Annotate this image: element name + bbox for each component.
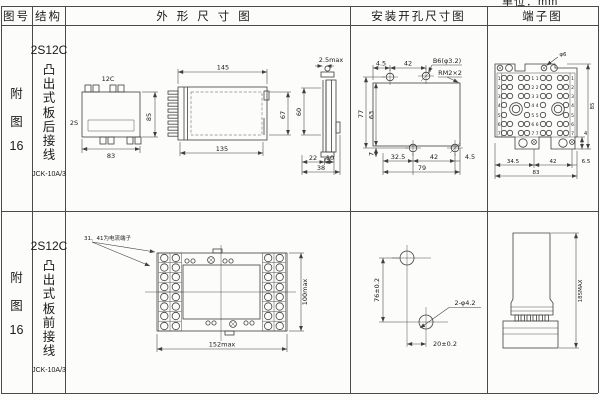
relay-edge-view: 2.5max 60 22 10 38	[295, 56, 343, 175]
screw-label: φ6	[559, 52, 567, 58]
svg-text:5 5: 5 5	[531, 113, 538, 119]
model-label: 2S12C	[31, 239, 68, 253]
dim-label: 20±0.2	[433, 340, 457, 348]
dim-label: 7	[368, 152, 376, 156]
svg-text:7 7: 7 7	[531, 131, 538, 137]
dim-label: 83	[533, 170, 540, 176]
header-mounting: 安装开孔尺寸图	[350, 6, 487, 25]
dim-label: 63	[368, 111, 376, 119]
svg-text:1: 1	[571, 76, 574, 82]
label-12c: 12C	[102, 75, 115, 83]
thread-spec-label: RM2×2	[438, 69, 462, 77]
svg-text:1 1: 1 1	[531, 76, 538, 82]
relay-profile-view: 185MAX	[503, 233, 584, 348]
svg-text:4: 4	[498, 103, 501, 109]
header-fig-no: 图号	[1, 6, 32, 25]
dim-label: 4.5	[376, 60, 386, 68]
svg-text:4 4: 4 4	[531, 103, 538, 109]
relay-side-view: 145 135 67	[168, 64, 291, 157]
svg-text:3 3: 3 3	[531, 94, 538, 100]
fig-char: 16	[10, 323, 24, 337]
wiring-type-label: 凸出式板前接线	[42, 259, 57, 358]
structure-row1: 2S12C 凸出式板后接线 JCK-10A/3	[33, 25, 65, 211]
dim-label: 6.5	[582, 159, 591, 165]
front-wiring-view: 31、41为电流端子 100max 152max	[84, 234, 309, 352]
svg-text:4: 4	[571, 103, 574, 109]
relay-type-label: JCK-10A/3	[32, 171, 66, 178]
model-label: 2S12C	[31, 43, 68, 57]
figure-number-row1: 附 图 16	[1, 25, 32, 211]
terminal-numbers: 11 11 22 22 33 33 44 44 55 55 66 66 77 7…	[498, 76, 574, 137]
mounting-holes-front: 2-φ4.2 76±0.2 20±0.2	[373, 245, 481, 348]
datasheet-page: 单位：mm 图号 结构 外形尺寸图 安装开孔尺寸图 端子图 附 图 16 附 图…	[0, 0, 600, 400]
dim-label: 42	[404, 60, 412, 68]
svg-text:6 6: 6 6	[531, 122, 538, 128]
mounting-drawing-row2: 2-φ4.2 76±0.2 20±0.2	[350, 211, 487, 395]
svg-text:7: 7	[498, 131, 501, 137]
header-structure: 结构	[32, 6, 65, 25]
svg-text:1: 1	[498, 76, 501, 82]
svg-text:5: 5	[498, 113, 501, 119]
svg-text:3: 3	[498, 94, 501, 100]
structure-row2: 2S12C 凸出式板前接线 JCK-10A/3	[33, 211, 65, 393]
relay-type-label: JCK-10A/3	[32, 367, 66, 374]
terminal-drawing-row2: 185MAX	[487, 211, 598, 395]
dim-label: 38	[317, 164, 325, 172]
svg-text:7: 7	[571, 131, 574, 137]
dim-label: 32.5	[391, 153, 405, 161]
table-border	[598, 6, 599, 393]
dim-label: 152max	[209, 341, 236, 349]
svg-text:2 2: 2 2	[531, 85, 538, 91]
dim-label: 85	[145, 113, 153, 121]
terminal-drawing-row1: φ6 11 11 22 22 33 33 44 44 55	[487, 25, 598, 211]
svg-text:6: 6	[571, 122, 574, 128]
outline-drawing-row2: 31、41为电流端子 100max 152max	[65, 211, 350, 395]
panel-cutout-drawing: 4.5 42 B6(φ3.2) RM2×2 77 63 7 32.5 42 4.…	[357, 57, 475, 175]
dim-label: 76±0.2	[373, 278, 381, 302]
dim-label: 185MAX	[578, 279, 584, 302]
dim-label: 10	[326, 154, 334, 162]
svg-text:2: 2	[498, 85, 501, 91]
label-2s: 2S	[70, 119, 78, 127]
fig-char: 图	[10, 295, 23, 314]
screw-spec-label: B6(φ3.2)	[433, 57, 461, 65]
dim-label: 60	[295, 108, 303, 116]
relay-top-view: 12C 2S 85 83	[70, 75, 158, 160]
terminal-layout-drawing: φ6 11 11 22 22 33 33 44 44 55	[495, 52, 596, 179]
dim-label: 22	[309, 154, 317, 162]
current-terminal-note: 31、41为电流端子	[84, 234, 131, 242]
svg-text:5: 5	[571, 113, 574, 119]
dim-label: 79	[418, 164, 426, 172]
dim-label: 4	[584, 131, 587, 137]
svg-text:2: 2	[571, 85, 574, 91]
fig-char: 附	[10, 83, 23, 102]
dim-label: 67	[279, 111, 287, 119]
header-terminal: 端子图	[487, 6, 598, 25]
svg-text:6: 6	[498, 122, 501, 128]
dim-label: 34.5	[507, 159, 520, 165]
dim-label: 100max	[301, 279, 309, 306]
dim-label: 83	[107, 152, 115, 160]
wiring-type-label: 凸出式板后接线	[42, 63, 57, 162]
fig-char: 图	[10, 111, 23, 130]
figure-number-row2: 附 图 16	[1, 211, 32, 393]
hole-spec-label: 2-φ4.2	[454, 299, 475, 307]
outline-drawing-row1: 12C 2S 85 83 145 135	[65, 25, 350, 211]
fig-char: 附	[10, 267, 23, 286]
mounting-drawing-row1: 4.5 42 B6(φ3.2) RM2×2 77 63 7 32.5 42 4.…	[350, 25, 487, 211]
dim-label: 2.5max	[319, 56, 344, 64]
dim-label: 4.5	[465, 153, 475, 161]
header-outline: 外形尺寸图	[65, 6, 350, 25]
dim-label: 85	[590, 102, 596, 109]
svg-text:3: 3	[571, 94, 574, 100]
dim-label: 42	[550, 159, 557, 165]
fig-char: 16	[10, 139, 24, 153]
dim-label: 145	[217, 64, 229, 72]
dim-label: 42	[430, 153, 438, 161]
dim-label: 77	[357, 110, 365, 118]
dim-label: 135	[216, 145, 228, 153]
